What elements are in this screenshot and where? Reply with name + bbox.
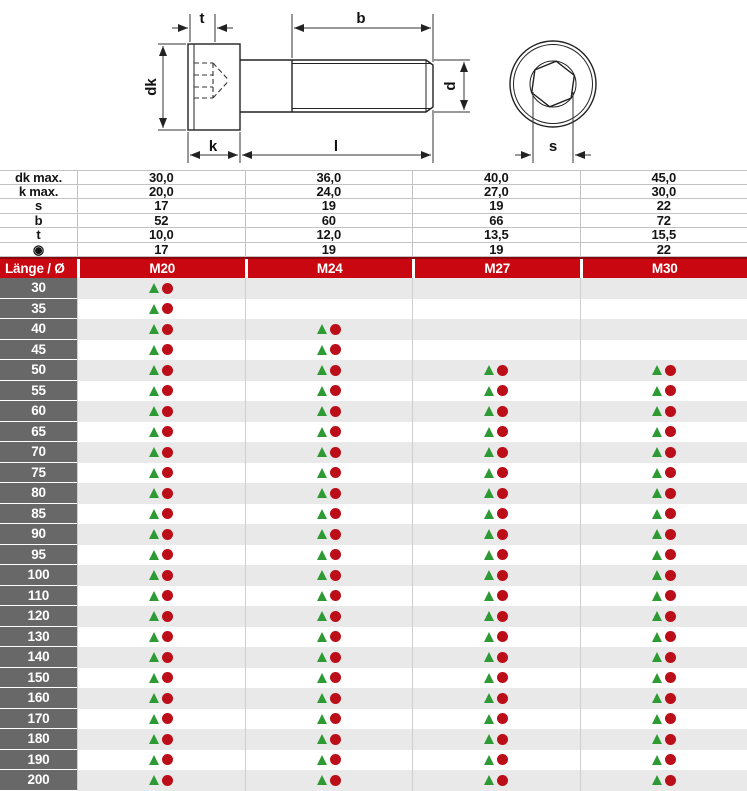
- availability-cell: [580, 647, 747, 668]
- length-label: 160: [0, 688, 77, 709]
- circle-marker-icon: [665, 672, 676, 683]
- circle-marker-icon: [162, 283, 173, 294]
- availability-cell: [245, 504, 413, 525]
- triangle-marker-icon: [149, 673, 159, 683]
- table-row: 190: [0, 750, 747, 771]
- circle-marker-icon: [497, 734, 508, 745]
- availability-cell: [245, 422, 413, 443]
- availability-cell: [412, 647, 580, 668]
- table-row: 90: [0, 524, 747, 545]
- dim-label-t: t: [200, 10, 205, 27]
- availability-cell: [580, 565, 747, 586]
- dim-label-dk: dk: [143, 78, 160, 96]
- circle-marker-icon: [665, 365, 676, 376]
- circle-marker-icon: [162, 365, 173, 376]
- circle-marker-icon: [497, 385, 508, 396]
- triangle-marker-icon: [652, 468, 662, 478]
- availability-cell: [245, 668, 413, 689]
- table-row: 85: [0, 504, 747, 525]
- availability-cell: [245, 360, 413, 381]
- availability-cell: [580, 463, 747, 484]
- availability-cell: [580, 299, 747, 320]
- triangle-marker-icon: [317, 714, 327, 724]
- triangle-marker-icon: [484, 591, 494, 601]
- circle-marker-icon: [162, 324, 173, 335]
- availability-cell: [412, 463, 580, 484]
- dim-label-k: k: [209, 138, 218, 155]
- availability-cell: [412, 565, 580, 586]
- circle-marker-icon: [497, 631, 508, 642]
- triangle-marker-icon: [317, 509, 327, 519]
- triangle-marker-icon: [652, 673, 662, 683]
- availability-cell: [77, 442, 245, 463]
- availability-cell: [77, 750, 245, 771]
- spec-value: 30,0: [77, 171, 245, 184]
- table-row: 75: [0, 463, 747, 484]
- table-row: 110: [0, 586, 747, 607]
- table-row: 45: [0, 340, 747, 361]
- table-row: 40: [0, 319, 747, 340]
- length-label: 30: [0, 278, 77, 299]
- triangle-marker-icon: [652, 386, 662, 396]
- triangle-marker-icon: [149, 447, 159, 457]
- triangle-marker-icon: [484, 570, 494, 580]
- triangle-marker-icon: [317, 570, 327, 580]
- table-row: 65: [0, 422, 747, 443]
- table-row: 120: [0, 606, 747, 627]
- circle-marker-icon: [497, 467, 508, 478]
- triangle-marker-icon: [652, 550, 662, 560]
- circle-marker-icon: [162, 385, 173, 396]
- bullseye-icon: ◉: [0, 243, 77, 257]
- circle-marker-icon: [497, 775, 508, 786]
- triangle-marker-icon: [317, 755, 327, 765]
- circle-marker-icon: [497, 406, 508, 417]
- triangle-marker-icon: [149, 406, 159, 416]
- table-row: 130: [0, 627, 747, 648]
- length-label: 190: [0, 750, 77, 771]
- spec-value: 20,0: [77, 185, 245, 199]
- circle-marker-icon: [330, 611, 341, 622]
- circle-marker-icon: [162, 303, 173, 314]
- circle-marker-icon: [497, 672, 508, 683]
- availability-cell: [412, 422, 580, 443]
- triangle-marker-icon: [484, 550, 494, 560]
- availability-cell: [77, 565, 245, 586]
- triangle-marker-icon: [149, 468, 159, 478]
- availability-cell: [580, 340, 747, 361]
- technical-drawing: t b dk k l d s: [0, 0, 747, 170]
- triangle-marker-icon: [149, 283, 159, 293]
- triangle-marker-icon: [652, 406, 662, 416]
- circle-marker-icon: [665, 631, 676, 642]
- triangle-marker-icon: [652, 714, 662, 724]
- availability-cell: [77, 360, 245, 381]
- availability-cell: [580, 483, 747, 504]
- circle-marker-icon: [162, 693, 173, 704]
- availability-cell: [412, 524, 580, 545]
- circle-marker-icon: [497, 611, 508, 622]
- availability-cell: [245, 483, 413, 504]
- circle-marker-icon: [665, 529, 676, 540]
- circle-marker-icon: [162, 406, 173, 417]
- table-row: 70: [0, 442, 747, 463]
- availability-cell: [77, 504, 245, 525]
- availability-cell: [412, 278, 580, 299]
- availability-cell: [245, 709, 413, 730]
- triangle-marker-icon: [484, 447, 494, 457]
- availability-cell: [77, 606, 245, 627]
- spec-row: b 52 60 66 72: [0, 214, 747, 229]
- table-row: 50: [0, 360, 747, 381]
- spec-value: 19: [245, 199, 413, 213]
- circle-marker-icon: [665, 549, 676, 560]
- triangle-marker-icon: [484, 714, 494, 724]
- availability-cell: [77, 627, 245, 648]
- circle-marker-icon: [162, 570, 173, 581]
- triangle-marker-icon: [484, 406, 494, 416]
- triangle-marker-icon: [149, 775, 159, 785]
- circle-marker-icon: [665, 754, 676, 765]
- spec-row-label: k max.: [0, 185, 77, 199]
- spec-value: 22: [580, 199, 747, 213]
- availability-cell: [245, 545, 413, 566]
- spec-row-label: t: [0, 228, 77, 242]
- circle-marker-icon: [162, 590, 173, 601]
- triangle-marker-icon: [484, 427, 494, 437]
- availability-cell: [412, 381, 580, 402]
- triangle-marker-icon: [652, 427, 662, 437]
- availability-cell: [412, 709, 580, 730]
- availability-cell: [245, 381, 413, 402]
- spec-row-label: s: [0, 199, 77, 213]
- availability-cell: [245, 627, 413, 648]
- circle-marker-icon: [162, 344, 173, 355]
- availability-cell: [245, 750, 413, 771]
- circle-marker-icon: [497, 529, 508, 540]
- triangle-marker-icon: [484, 509, 494, 519]
- availability-cell: [77, 524, 245, 545]
- availability-cell: [412, 483, 580, 504]
- triangle-marker-icon: [484, 365, 494, 375]
- circle-marker-icon: [162, 529, 173, 540]
- availability-cell: [245, 606, 413, 627]
- spec-value: 52: [77, 214, 245, 228]
- triangle-marker-icon: [317, 365, 327, 375]
- availability-cell: [580, 381, 747, 402]
- availability-cell: [77, 381, 245, 402]
- availability-cell: [77, 278, 245, 299]
- size-column-header-m30: M30: [580, 259, 747, 278]
- spec-value: 72: [580, 214, 747, 228]
- length-diameter-header: Länge / Ø: [0, 259, 77, 278]
- availability-cell: [77, 340, 245, 361]
- circle-marker-icon: [330, 447, 341, 458]
- circle-marker-icon: [665, 385, 676, 396]
- length-label: 150: [0, 668, 77, 689]
- availability-cell: [245, 299, 413, 320]
- spec-row: s 17 19 19 22: [0, 199, 747, 214]
- circle-marker-icon: [162, 447, 173, 458]
- table-row: 150: [0, 668, 747, 689]
- triangle-marker-icon: [149, 693, 159, 703]
- circle-marker-icon: [162, 652, 173, 663]
- circle-marker-icon: [665, 447, 676, 458]
- triangle-marker-icon: [652, 570, 662, 580]
- circle-marker-icon: [162, 713, 173, 724]
- spec-value: 45,0: [580, 171, 747, 184]
- triangle-marker-icon: [484, 488, 494, 498]
- triangle-marker-icon: [317, 468, 327, 478]
- availability-cell: [412, 401, 580, 422]
- availability-cell: [245, 586, 413, 607]
- spec-value: 10,0: [77, 228, 245, 242]
- circle-marker-icon: [162, 467, 173, 478]
- triangle-marker-icon: [317, 406, 327, 416]
- availability-cell: [412, 627, 580, 648]
- circle-marker-icon: [162, 426, 173, 437]
- availability-cell: [412, 586, 580, 607]
- triangle-marker-icon: [149, 324, 159, 334]
- availability-cell: [412, 668, 580, 689]
- dimension-lines: [158, 14, 591, 163]
- length-label: 40: [0, 319, 77, 340]
- size-column-header-m20: M20: [77, 259, 245, 278]
- availability-cell: [412, 299, 580, 320]
- table-row: 180: [0, 729, 747, 750]
- availability-cell: [77, 770, 245, 791]
- length-label: 55: [0, 381, 77, 402]
- triangle-marker-icon: [149, 386, 159, 396]
- triangle-marker-icon: [652, 488, 662, 498]
- availability-cell: [580, 319, 747, 340]
- availability-cell: [580, 360, 747, 381]
- spec-row: k max. 20,0 24,0 27,0 30,0: [0, 185, 747, 200]
- triangle-marker-icon: [317, 447, 327, 457]
- triangle-marker-icon: [317, 693, 327, 703]
- triangle-marker-icon: [317, 591, 327, 601]
- triangle-marker-icon: [149, 714, 159, 724]
- length-label: 110: [0, 586, 77, 607]
- table-row: 55: [0, 381, 747, 402]
- circle-marker-icon: [330, 734, 341, 745]
- availability-cell: [77, 319, 245, 340]
- circle-marker-icon: [665, 590, 676, 601]
- triangle-marker-icon: [149, 550, 159, 560]
- triangle-marker-icon: [484, 611, 494, 621]
- circle-marker-icon: [665, 426, 676, 437]
- triangle-marker-icon: [652, 652, 662, 662]
- length-label: 80: [0, 483, 77, 504]
- availability-cell: [580, 729, 747, 750]
- triangle-marker-icon: [317, 611, 327, 621]
- circle-marker-icon: [330, 529, 341, 540]
- availability-cell: [245, 565, 413, 586]
- table-row: 95: [0, 545, 747, 566]
- circle-marker-icon: [665, 693, 676, 704]
- availability-cell: [412, 360, 580, 381]
- availability-cell: [245, 401, 413, 422]
- triangle-marker-icon: [484, 529, 494, 539]
- availability-cell: [77, 483, 245, 504]
- circle-marker-icon: [497, 590, 508, 601]
- length-label: 95: [0, 545, 77, 566]
- availability-cell: [412, 729, 580, 750]
- screw-end-view: [510, 41, 596, 127]
- length-label: 75: [0, 463, 77, 484]
- circle-marker-icon: [330, 775, 341, 786]
- circle-marker-icon: [497, 652, 508, 663]
- availability-cell: [77, 545, 245, 566]
- spec-row: ◉ 17 19 19 22: [0, 243, 747, 258]
- availability-cell: [77, 709, 245, 730]
- availability-cell: [580, 688, 747, 709]
- circle-marker-icon: [665, 734, 676, 745]
- circle-marker-icon: [665, 488, 676, 499]
- triangle-marker-icon: [484, 386, 494, 396]
- circle-marker-icon: [162, 672, 173, 683]
- length-label: 60: [0, 401, 77, 422]
- circle-marker-icon: [162, 549, 173, 560]
- circle-marker-icon: [330, 713, 341, 724]
- circle-marker-icon: [665, 406, 676, 417]
- triangle-marker-icon: [484, 468, 494, 478]
- table-row: 140: [0, 647, 747, 668]
- circle-marker-icon: [665, 713, 676, 724]
- spec-value: 30,0: [580, 185, 747, 199]
- availability-cell: [580, 709, 747, 730]
- circle-marker-icon: [497, 570, 508, 581]
- availability-cell: [580, 770, 747, 791]
- availability-cell: [245, 524, 413, 545]
- spec-value: 13,5: [412, 228, 580, 242]
- circle-marker-icon: [162, 611, 173, 622]
- triangle-marker-icon: [317, 345, 327, 355]
- triangle-marker-icon: [149, 345, 159, 355]
- triangle-marker-icon: [484, 775, 494, 785]
- triangle-marker-icon: [149, 632, 159, 642]
- circle-marker-icon: [330, 754, 341, 765]
- availability-cell: [580, 524, 747, 545]
- spec-value: 66: [412, 214, 580, 228]
- circle-marker-icon: [330, 385, 341, 396]
- spec-value: 12,0: [245, 228, 413, 242]
- size-column-header-m27: M27: [412, 259, 580, 278]
- triangle-marker-icon: [484, 632, 494, 642]
- availability-cell: [580, 442, 747, 463]
- circle-marker-icon: [330, 406, 341, 417]
- availability-cell: [412, 442, 580, 463]
- availability-cell: [77, 401, 245, 422]
- availability-cell: [245, 770, 413, 791]
- spec-value: 27,0: [412, 185, 580, 199]
- spec-value: 60: [245, 214, 413, 228]
- triangle-marker-icon: [652, 509, 662, 519]
- availability-cell: [77, 668, 245, 689]
- availability-cell: [580, 586, 747, 607]
- triangle-marker-icon: [149, 755, 159, 765]
- circle-marker-icon: [330, 570, 341, 581]
- triangle-marker-icon: [317, 775, 327, 785]
- triangle-marker-icon: [317, 734, 327, 744]
- circle-marker-icon: [497, 508, 508, 519]
- circle-marker-icon: [330, 693, 341, 704]
- availability-cell: [412, 319, 580, 340]
- length-label: 45: [0, 340, 77, 361]
- circle-marker-icon: [330, 652, 341, 663]
- circle-marker-icon: [497, 754, 508, 765]
- availability-cell: [412, 606, 580, 627]
- availability-cell: [245, 278, 413, 299]
- circle-marker-icon: [330, 590, 341, 601]
- availability-table: 30 35 40 45 50 55: [0, 278, 747, 791]
- table-row: 160: [0, 688, 747, 709]
- availability-cell: [580, 401, 747, 422]
- length-label: 90: [0, 524, 77, 545]
- triangle-marker-icon: [149, 304, 159, 314]
- table-row: 100: [0, 565, 747, 586]
- triangle-marker-icon: [149, 365, 159, 375]
- table-row: 80: [0, 483, 747, 504]
- circle-marker-icon: [665, 611, 676, 622]
- circle-marker-icon: [497, 365, 508, 376]
- triangle-marker-icon: [149, 529, 159, 539]
- length-label: 180: [0, 729, 77, 750]
- length-label: 130: [0, 627, 77, 648]
- circle-marker-icon: [497, 693, 508, 704]
- triangle-marker-icon: [317, 550, 327, 560]
- triangle-marker-icon: [317, 324, 327, 334]
- circle-marker-icon: [497, 713, 508, 724]
- spec-value: 36,0: [245, 171, 413, 184]
- table-row: 60: [0, 401, 747, 422]
- triangle-marker-icon: [149, 509, 159, 519]
- circle-marker-icon: [330, 508, 341, 519]
- circle-marker-icon: [330, 488, 341, 499]
- triangle-marker-icon: [484, 652, 494, 662]
- triangle-marker-icon: [149, 488, 159, 498]
- availability-cell: [580, 278, 747, 299]
- circle-marker-icon: [665, 508, 676, 519]
- triangle-marker-icon: [317, 652, 327, 662]
- spec-value: 19: [245, 243, 413, 257]
- dim-label-d: d: [442, 81, 459, 90]
- triangle-marker-icon: [652, 591, 662, 601]
- circle-marker-icon: [330, 426, 341, 437]
- availability-cell: [245, 647, 413, 668]
- availability-cell: [580, 606, 747, 627]
- availability-cell: [245, 688, 413, 709]
- availability-cell: [580, 668, 747, 689]
- circle-marker-icon: [665, 467, 676, 478]
- availability-cell: [77, 688, 245, 709]
- length-label: 200: [0, 770, 77, 791]
- circle-marker-icon: [330, 467, 341, 478]
- circle-marker-icon: [497, 488, 508, 499]
- circle-marker-icon: [162, 734, 173, 745]
- circle-marker-icon: [665, 652, 676, 663]
- length-label: 120: [0, 606, 77, 627]
- table-row: 30: [0, 278, 747, 299]
- triangle-marker-icon: [317, 488, 327, 498]
- triangle-marker-icon: [317, 386, 327, 396]
- triangle-marker-icon: [652, 775, 662, 785]
- circle-marker-icon: [665, 570, 676, 581]
- length-label: 35: [0, 299, 77, 320]
- spec-row-label: b: [0, 214, 77, 228]
- triangle-marker-icon: [652, 734, 662, 744]
- screw-side-view: [188, 44, 433, 130]
